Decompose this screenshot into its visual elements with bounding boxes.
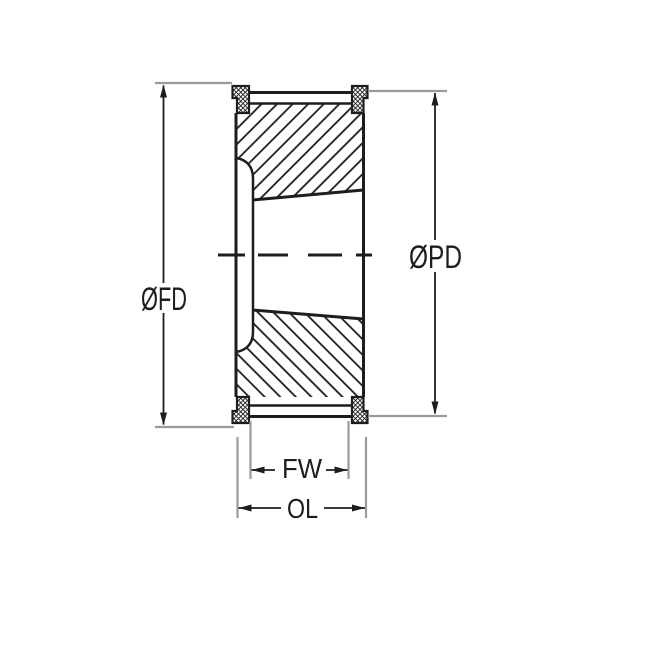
hatched-section-lower [236,310,364,406]
pulley-technical-drawing: ØFD ØPD FW OL [0,0,670,670]
hatched-section-upper [236,104,364,201]
label-face-width: FW [282,453,323,484]
label-flange-diameter: ØFD [141,281,187,317]
drawing-canvas: ØFD ØPD FW OL [0,0,670,670]
label-overall-length: OL [287,493,318,524]
label-pitch-diameter: ØPD [409,239,462,275]
